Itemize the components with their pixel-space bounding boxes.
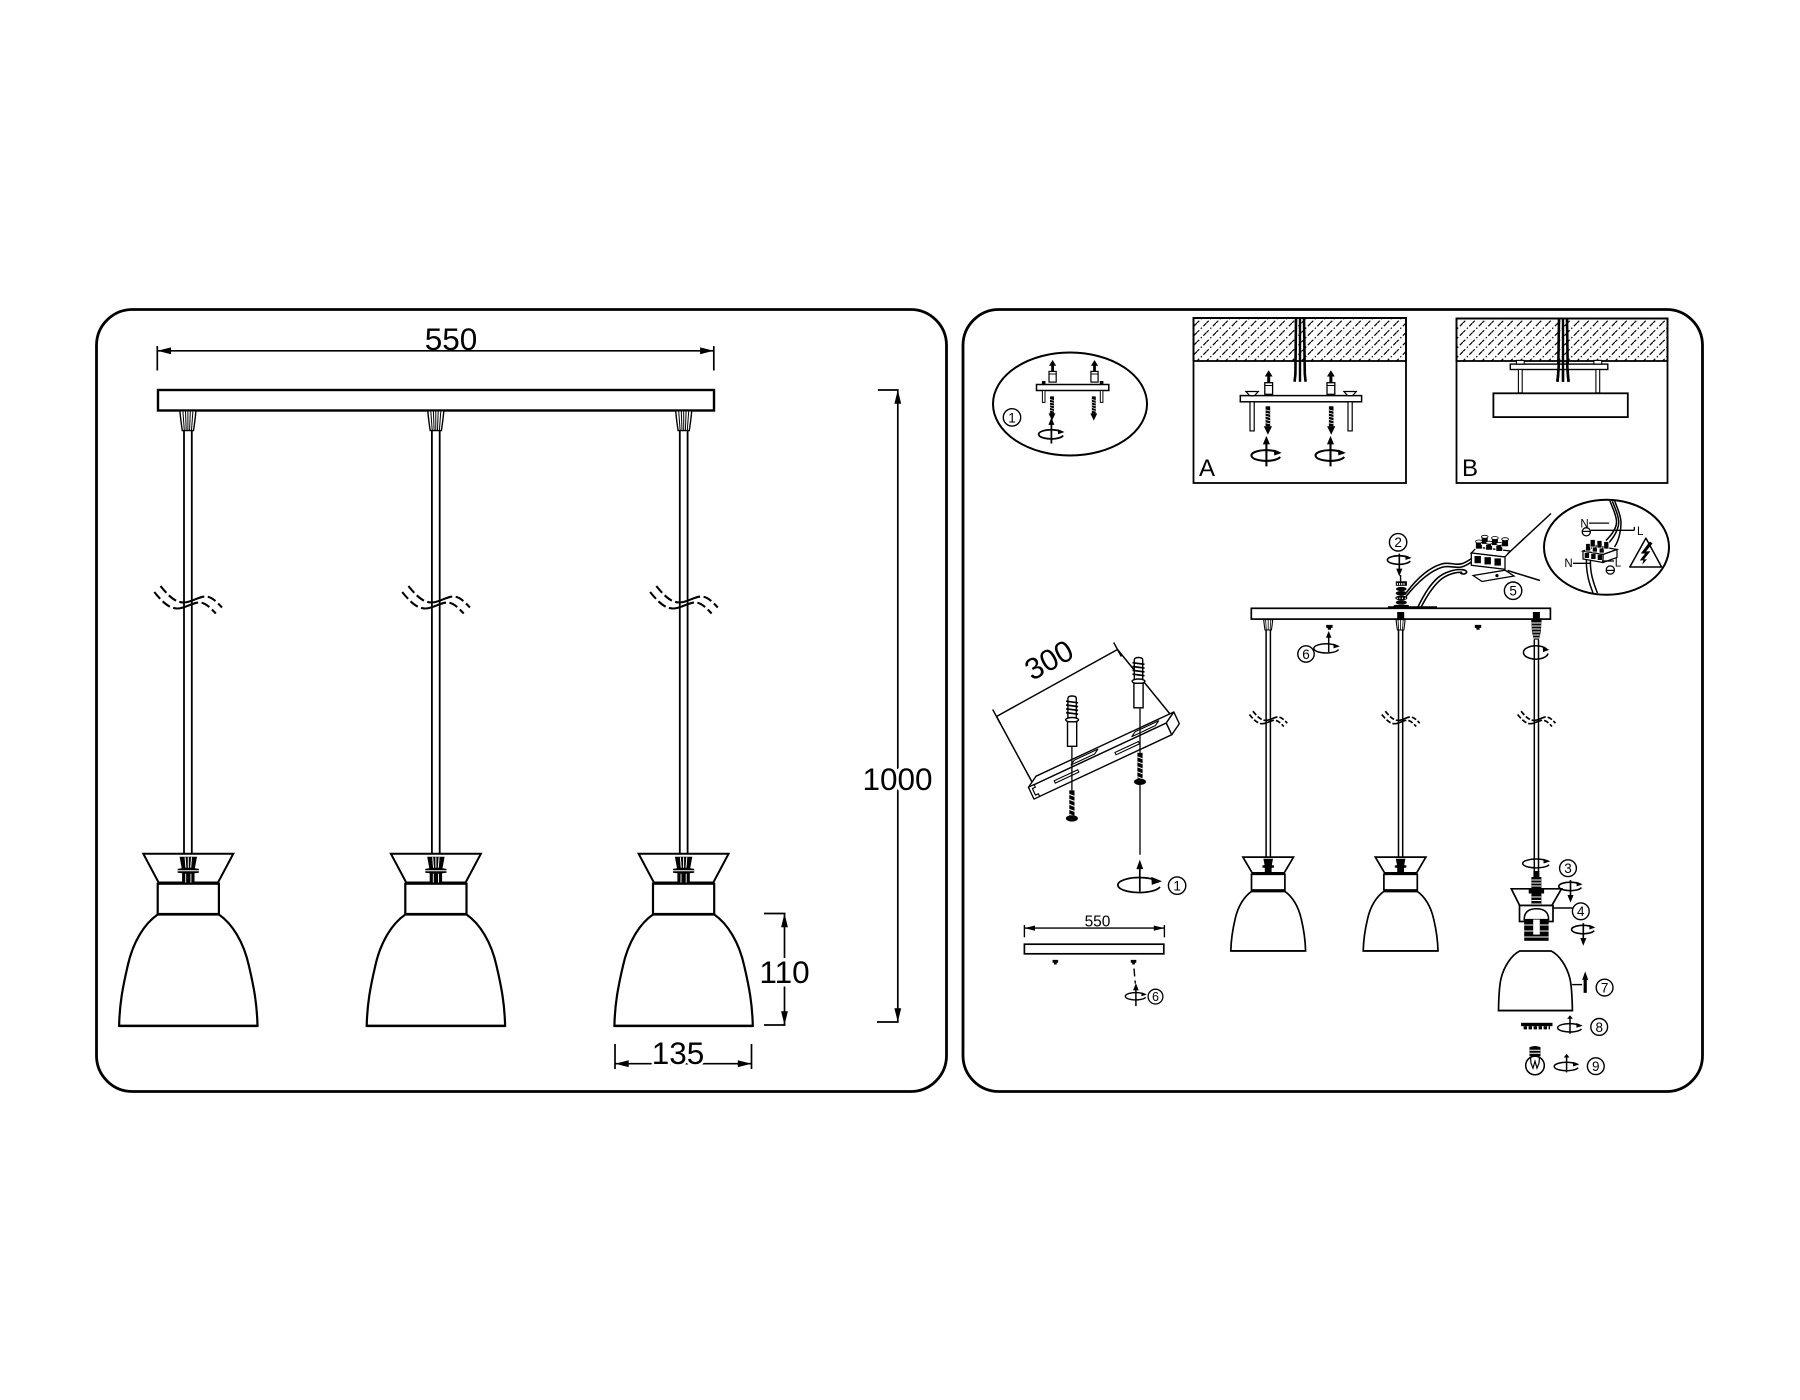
svg-text:4: 4 [1577,904,1585,919]
svg-text:5: 5 [1509,584,1517,599]
svg-text:1: 1 [1008,410,1016,425]
svg-text:9: 9 [1592,1059,1600,1074]
svg-text:L: L [1637,526,1644,538]
svg-text:6: 6 [1302,647,1310,662]
svg-text:135: 135 [652,1035,705,1071]
svg-text:L: L [1615,558,1622,570]
svg-text:7: 7 [1601,981,1609,996]
svg-text:8: 8 [1595,1020,1603,1035]
svg-text:1000: 1000 [862,761,932,797]
svg-text:A: A [1199,455,1215,482]
svg-text:6: 6 [1152,990,1159,1004]
svg-text:2: 2 [1394,535,1402,550]
svg-text:3: 3 [1564,861,1572,876]
svg-text:110: 110 [759,954,809,990]
svg-text:B: B [1462,455,1478,482]
svg-text:N: N [1564,558,1572,570]
svg-text:1: 1 [1173,879,1181,894]
svg-text:550: 550 [1085,914,1111,931]
svg-text:550: 550 [425,321,478,357]
